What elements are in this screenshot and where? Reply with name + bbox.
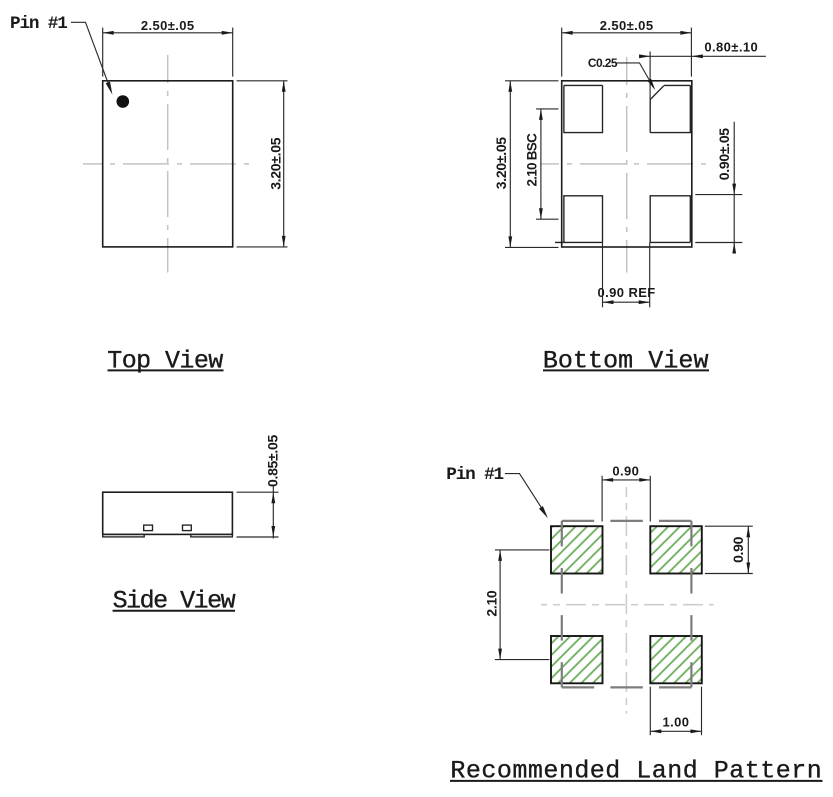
- svg-text:2.10: 2.10: [484, 590, 500, 617]
- svg-text:3.20±.05: 3.20±.05: [493, 137, 509, 190]
- svg-text:0.80±.10: 0.80±.10: [704, 40, 758, 55]
- svg-text:0.90: 0.90: [730, 536, 746, 563]
- svg-text:0.90±.05: 0.90±.05: [716, 128, 732, 181]
- svg-text:0.90: 0.90: [612, 463, 639, 478]
- svg-text:0.90 REF: 0.90 REF: [598, 285, 656, 300]
- svg-text:0.85±.05: 0.85±.05: [265, 434, 281, 487]
- svg-text:2.50±.05: 2.50±.05: [600, 18, 654, 33]
- svg-text:2.10 BSC: 2.10 BSC: [524, 133, 539, 187]
- svg-text:C0.25: C0.25: [588, 56, 618, 70]
- svg-text:Pin #1: Pin #1: [446, 465, 503, 485]
- svg-text:3.20±.05: 3.20±.05: [267, 137, 283, 190]
- svg-text:Pin #1: Pin #1: [10, 14, 67, 34]
- svg-text:2.50±.05: 2.50±.05: [141, 18, 195, 33]
- svg-text:1.00: 1.00: [662, 714, 689, 729]
